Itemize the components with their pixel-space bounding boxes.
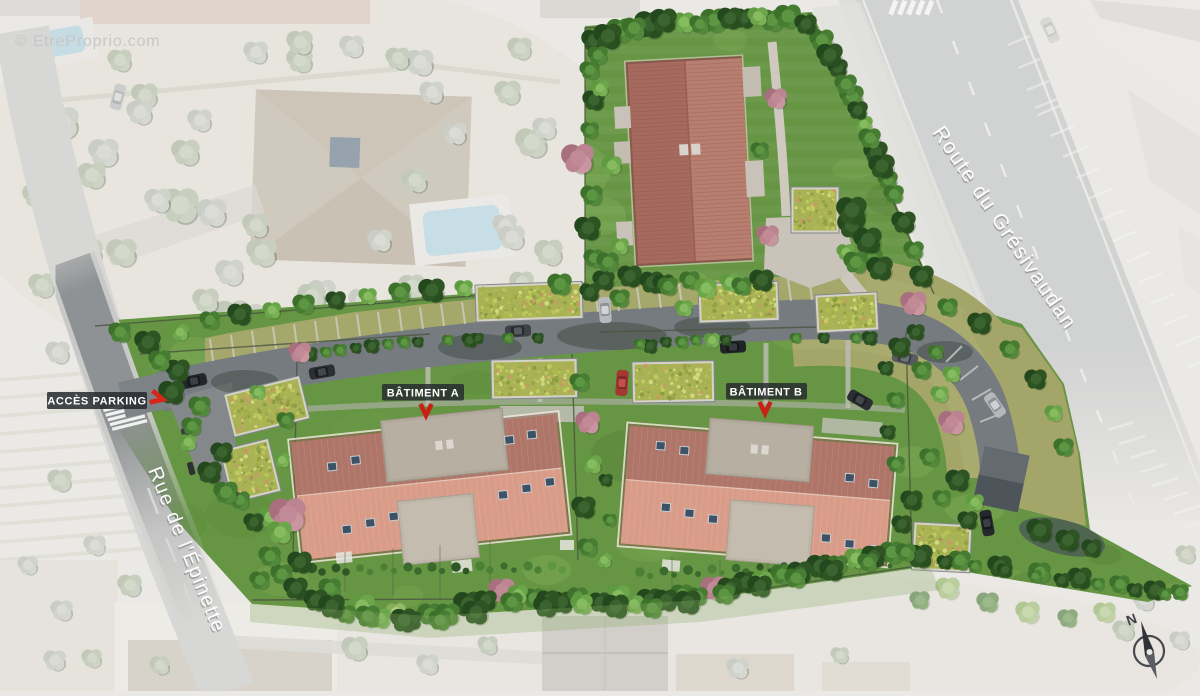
svg-text:ACCÈS PARKING: ACCÈS PARKING [47, 395, 146, 408]
svg-text:BÂTIMENT B: BÂTIMENT B [730, 386, 803, 399]
svg-text:BÂTIMENT A: BÂTIMENT A [387, 387, 459, 400]
svg-text:© EtreProprio.com: © EtreProprio.com [15, 33, 160, 50]
